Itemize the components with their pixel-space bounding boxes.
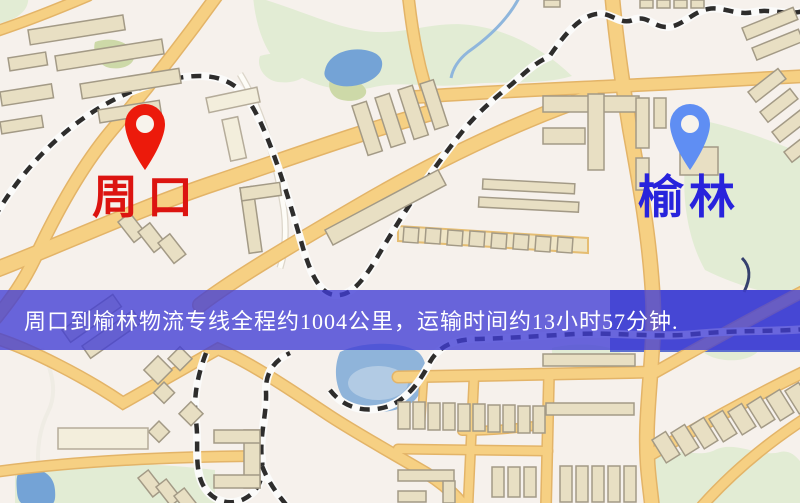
- destination-pin-icon: [666, 100, 714, 172]
- map-screenshot: 周口 榆林 周口到榆林物流专线全程约1004公里，运输时间约13小时57分钟.: [0, 0, 800, 503]
- origin-pin-icon: [121, 100, 169, 172]
- destination-city-label: 榆林: [638, 174, 740, 222]
- route-banner-text: 周口到榆林物流专线全程约1004公里，运输时间约13小时57分钟.: [24, 304, 679, 336]
- route-banner: 周口到榆林物流专线全程约1004公里，运输时间约13小时57分钟.: [0, 290, 800, 350]
- origin-city-label: 周口: [92, 174, 202, 222]
- map-canvas: [0, 0, 800, 503]
